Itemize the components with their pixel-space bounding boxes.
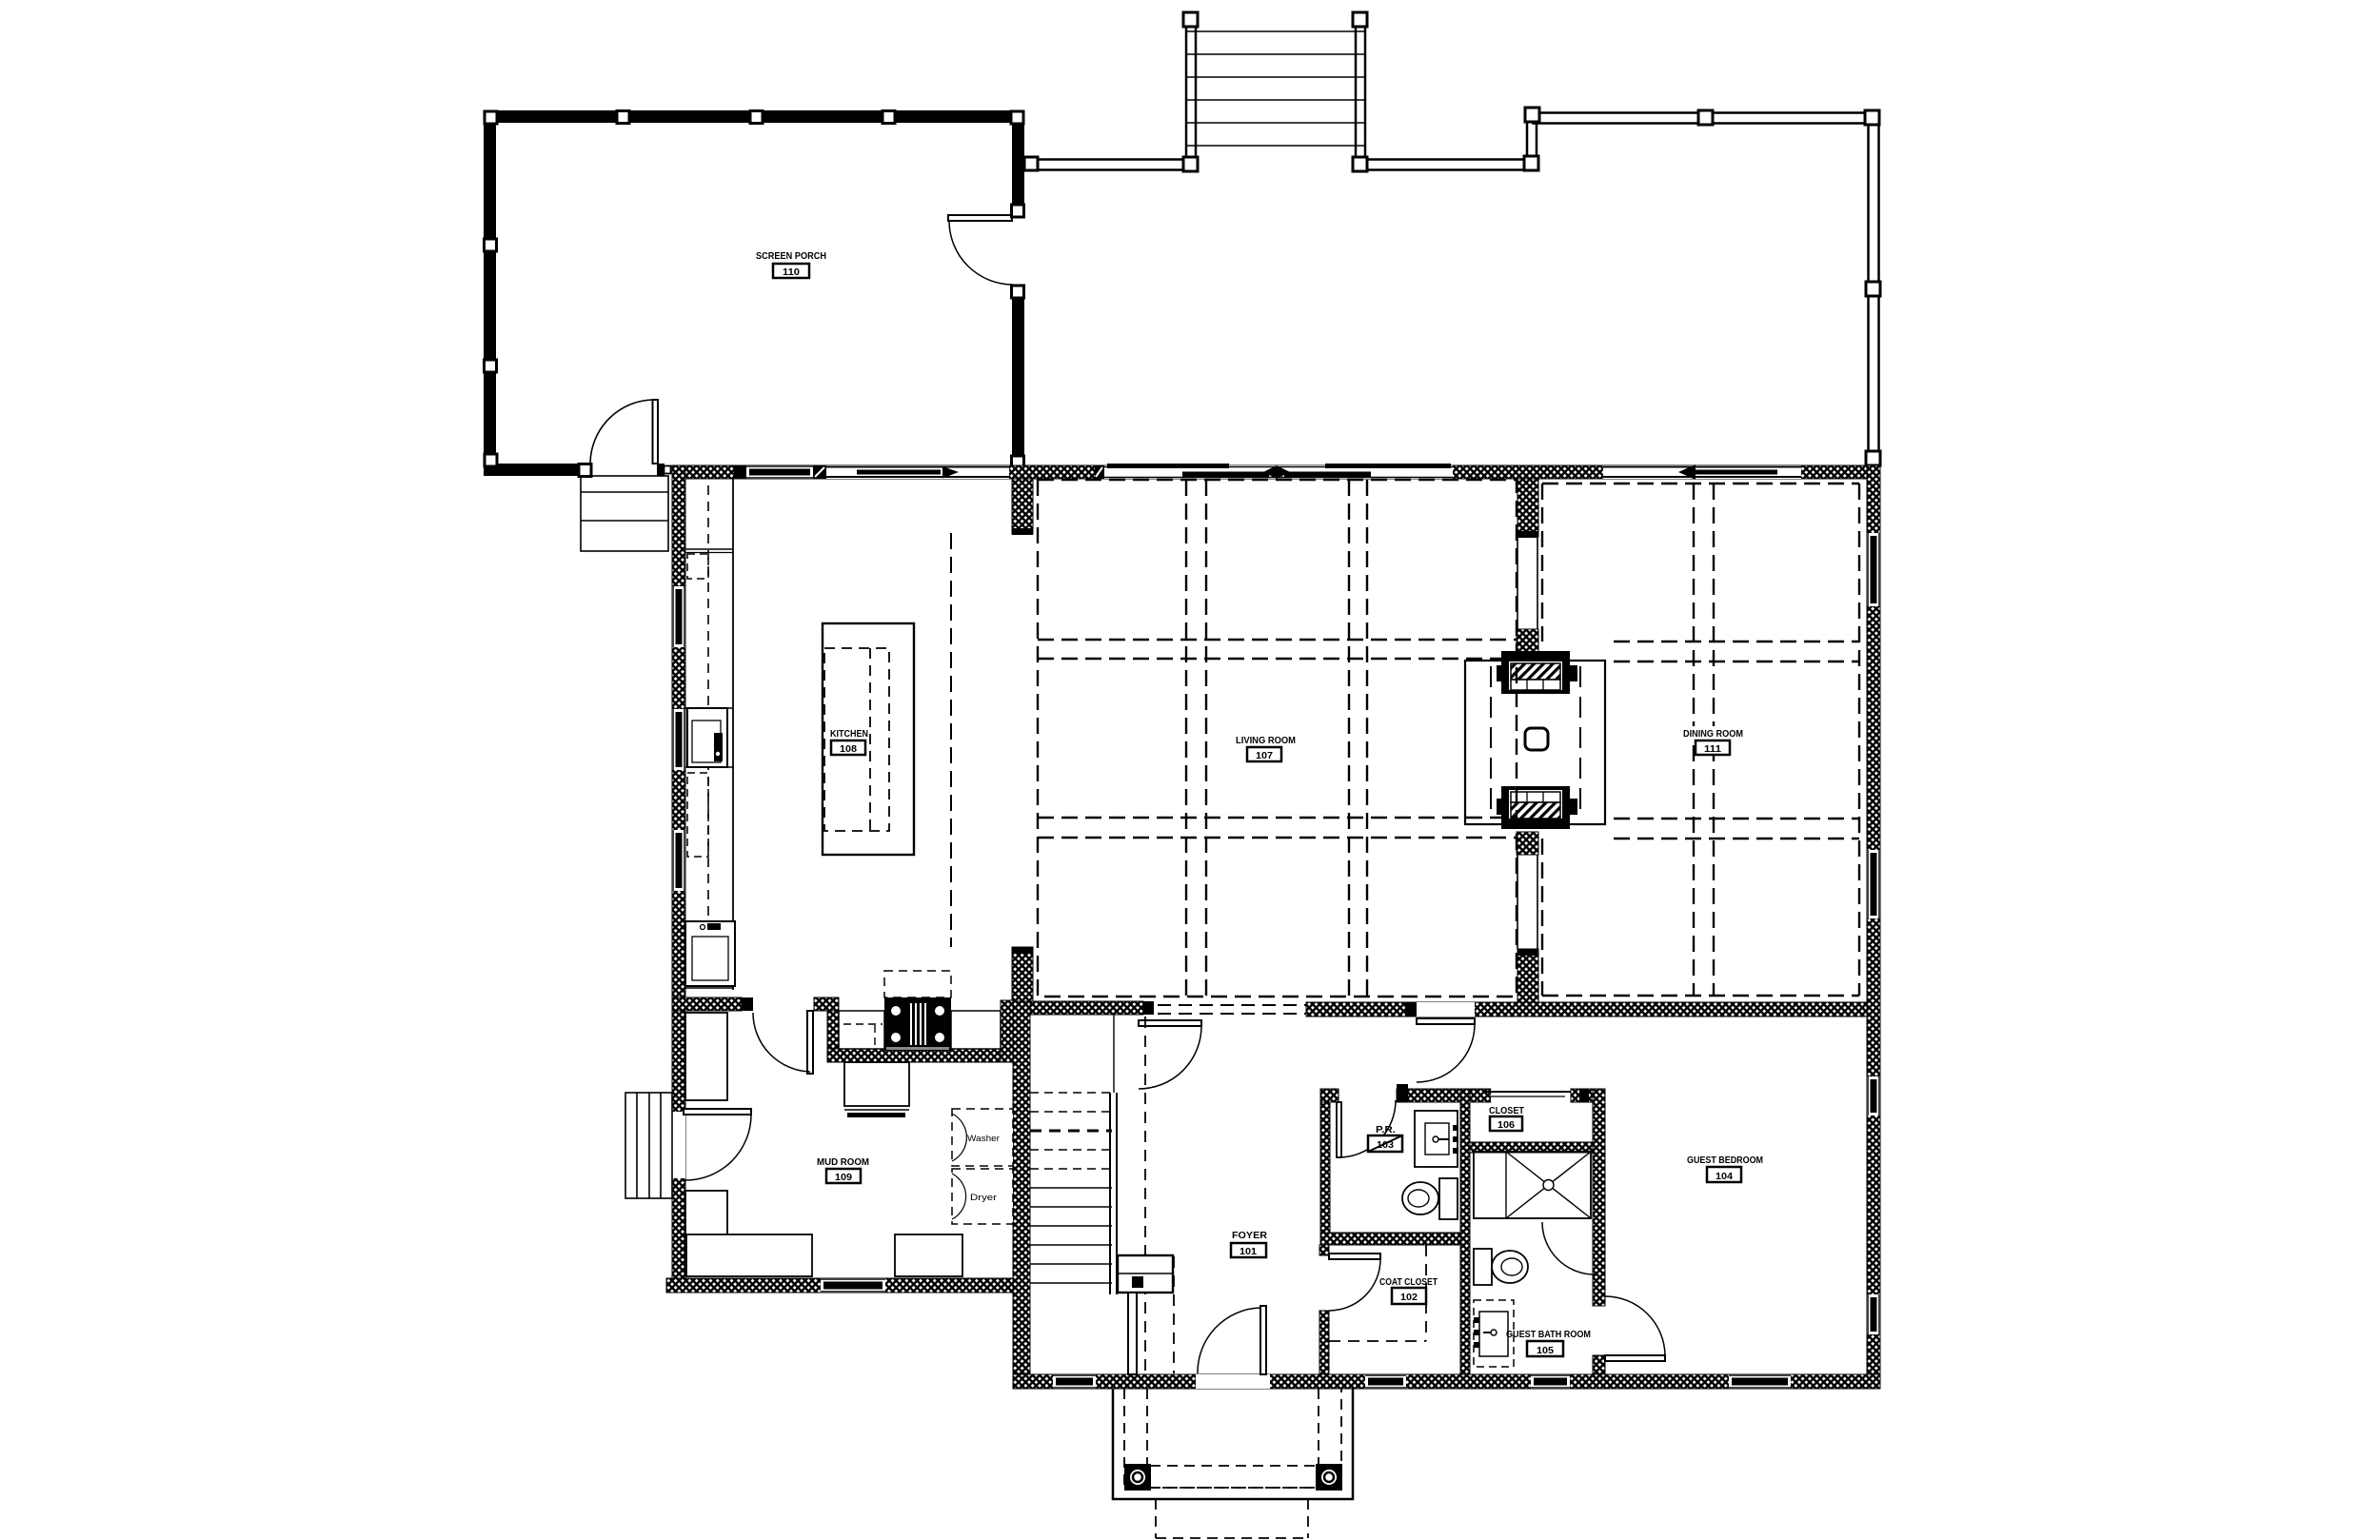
svg-text:CLOSET: CLOSET: [1489, 1106, 1524, 1116]
svg-text:105: 105: [1537, 1346, 1554, 1356]
svg-text:109: 109: [835, 1173, 852, 1183]
svg-text:107: 107: [1256, 751, 1273, 761]
svg-text:101: 101: [1240, 1247, 1257, 1257]
svg-text:108: 108: [840, 744, 857, 755]
svg-text:102: 102: [1400, 1293, 1418, 1303]
svg-text:103: 103: [1377, 1140, 1394, 1151]
svg-text:106: 106: [1497, 1120, 1515, 1131]
svg-text:111: 111: [1704, 744, 1721, 755]
svg-text:GUEST BEDROOM: GUEST BEDROOM: [1687, 1155, 1763, 1166]
svg-text:MUD ROOM: MUD ROOM: [817, 1157, 869, 1168]
svg-text:Washer: Washer: [967, 1134, 1000, 1144]
svg-text:LIVING ROOM: LIVING ROOM: [1236, 736, 1296, 746]
svg-text:Dryer: Dryer: [970, 1193, 997, 1203]
svg-text:GUEST BATH ROOM: GUEST BATH ROOM: [1506, 1330, 1591, 1340]
svg-text:P.R.: P.R.: [1376, 1125, 1396, 1135]
svg-text:104: 104: [1716, 1172, 1733, 1182]
svg-text:COAT CLOSET: COAT CLOSET: [1379, 1277, 1438, 1288]
svg-text:KITCHEN: KITCHEN: [830, 729, 868, 740]
svg-text:110: 110: [783, 267, 800, 278]
svg-text:SCREEN PORCH: SCREEN PORCH: [756, 251, 826, 262]
svg-text:FOYER: FOYER: [1232, 1231, 1268, 1241]
svg-text:DINING ROOM: DINING ROOM: [1683, 729, 1743, 740]
